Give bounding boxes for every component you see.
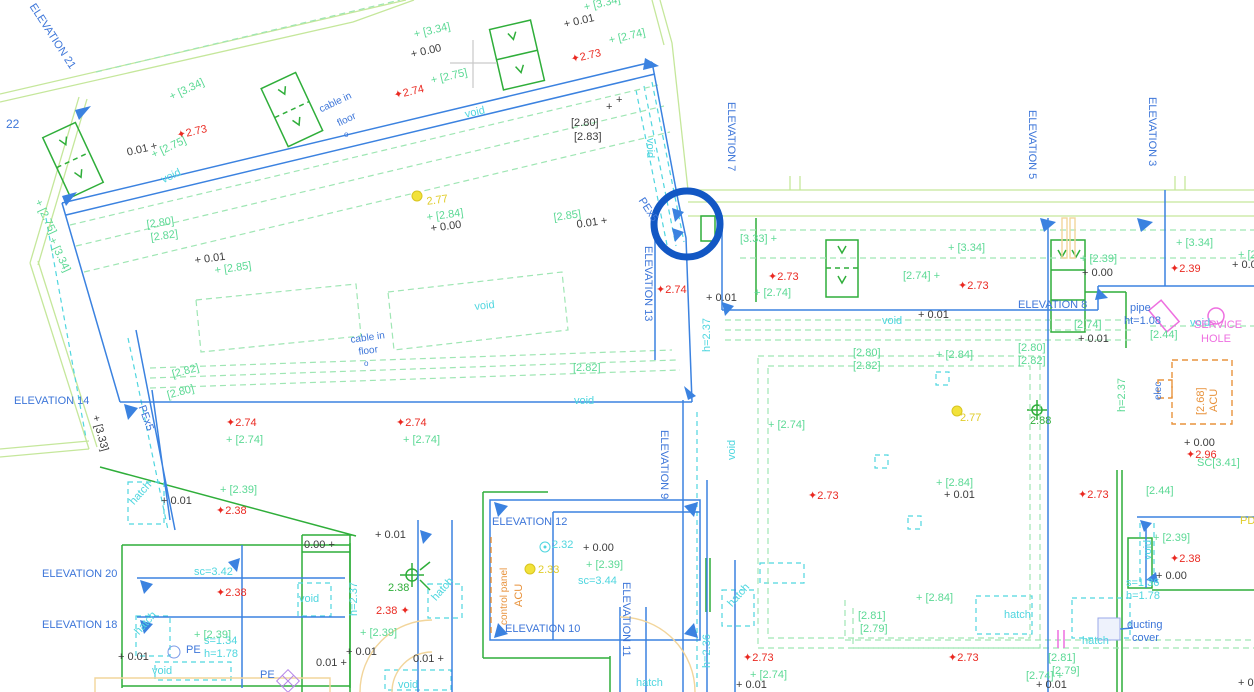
service-hole-icon — [1208, 308, 1224, 324]
light-fixture — [826, 240, 858, 297]
survey-dot-yellow — [525, 564, 535, 574]
light-symbol — [400, 400, 1047, 590]
ducting-cover-icon — [1098, 618, 1120, 640]
pe-circle-icon — [168, 646, 180, 658]
light-fixture — [43, 122, 104, 197]
orange-dashed — [491, 360, 1232, 634]
survey-dot-yellow — [952, 406, 962, 416]
light-fixture — [490, 20, 545, 90]
light-fixture — [261, 73, 322, 147]
dark-green-walls — [43, 20, 1254, 692]
green-dashed-lines — [70, 0, 1254, 648]
pe-diamond-icon — [277, 670, 300, 692]
drawing-canvas — [0, 0, 1254, 692]
light-fixture — [701, 216, 715, 241]
markers — [168, 40, 1224, 692]
survey-dot-yellow — [412, 191, 422, 201]
elevation-flags — [62, 58, 1158, 638]
cad-viewport: ELEVATION 2122ELEVATION 7ELEVATION 13ELE… — [0, 0, 1254, 692]
